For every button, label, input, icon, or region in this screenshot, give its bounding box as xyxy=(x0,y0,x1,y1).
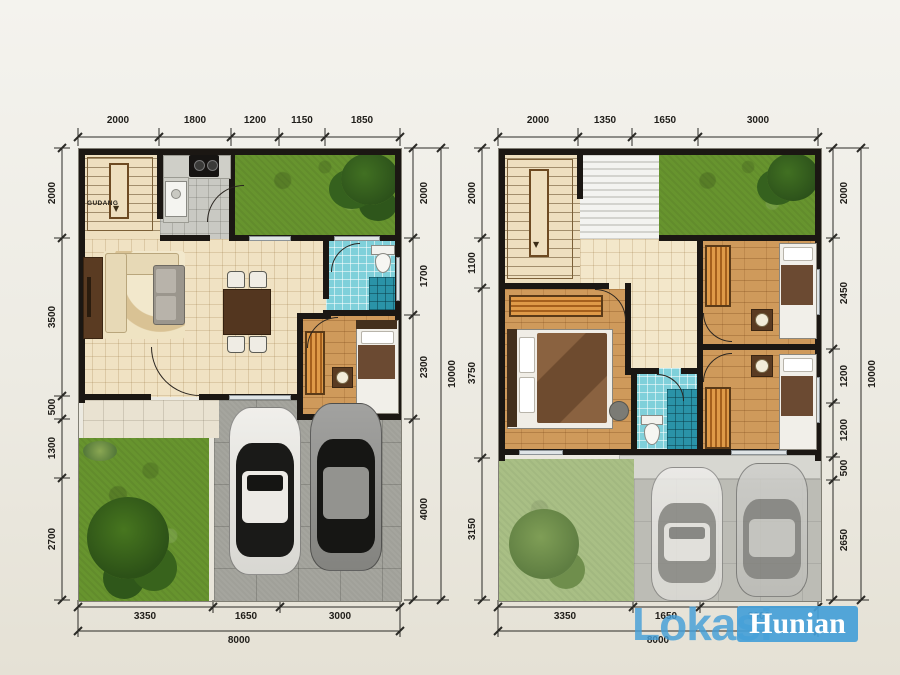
dining-chair xyxy=(249,336,267,353)
pillow xyxy=(361,331,394,344)
bed-blanket xyxy=(358,345,395,379)
car-sunroof xyxy=(669,527,705,539)
stool xyxy=(609,401,629,421)
dim-label: 2450 xyxy=(840,282,850,304)
dim-label: 1100 xyxy=(468,252,478,274)
stove-burner xyxy=(207,160,218,171)
dim-label: 1300 xyxy=(48,437,58,459)
gray-car xyxy=(310,403,382,571)
dim-total-label: 10000 xyxy=(868,360,878,388)
wall xyxy=(577,149,583,199)
dim-label: 2300 xyxy=(420,356,430,378)
lamp xyxy=(755,313,769,327)
dim-label: 1650 xyxy=(654,116,676,126)
stair-direction-arrow: ▼ xyxy=(533,241,539,249)
wall xyxy=(659,235,821,241)
terrace xyxy=(83,400,219,438)
dining-chair xyxy=(227,271,245,288)
tv xyxy=(87,277,91,317)
dim-total-label: 8000 xyxy=(228,636,250,646)
dim-label: 1850 xyxy=(351,116,373,126)
master-headboard xyxy=(507,329,517,427)
front-garden-tree xyxy=(87,497,169,579)
white-car xyxy=(229,407,301,575)
wall xyxy=(160,235,210,241)
bed-headboard xyxy=(356,320,397,329)
dim-label: 1200 xyxy=(840,365,850,387)
dim-label: 1200 xyxy=(244,116,266,126)
dim-label: 1200 xyxy=(840,419,850,441)
window xyxy=(396,257,400,301)
wall xyxy=(499,149,821,155)
kitchen-sink xyxy=(165,181,187,217)
stove-burner xyxy=(194,160,205,171)
garden-bush xyxy=(341,153,399,205)
dim-label: 500 xyxy=(840,460,850,477)
pillow xyxy=(783,358,813,372)
wall xyxy=(697,344,821,350)
dim-label: 1350 xyxy=(594,116,616,126)
car-roof xyxy=(749,519,795,557)
upper-floor-plan: ▼ xyxy=(498,148,822,602)
sectional-sofa xyxy=(105,253,127,333)
wall xyxy=(323,239,329,299)
pillow xyxy=(783,247,813,261)
dim-label: 2000 xyxy=(468,182,478,204)
watermark-text-box: Hunian xyxy=(749,609,846,639)
dim-label: 3000 xyxy=(747,116,769,126)
wall xyxy=(79,394,151,400)
wall xyxy=(499,283,609,289)
dim-label: 2000 xyxy=(420,182,430,204)
window xyxy=(249,236,291,241)
wall xyxy=(499,149,505,461)
wall xyxy=(631,368,637,455)
dim-label: 1700 xyxy=(420,265,430,287)
car-sunroof xyxy=(247,475,283,491)
wardrobe xyxy=(705,387,731,449)
dining-table xyxy=(223,289,271,335)
window xyxy=(731,450,787,455)
master-blanket xyxy=(537,333,607,423)
dim-label: 3750 xyxy=(468,362,478,384)
roof-strip xyxy=(580,149,659,239)
window xyxy=(519,450,563,455)
dim-label: 3000 xyxy=(329,612,351,622)
wall xyxy=(323,310,401,316)
dining-chair xyxy=(249,271,267,288)
pillow xyxy=(519,337,535,373)
dim-label: 3500 xyxy=(48,306,58,328)
sofa-cushion xyxy=(156,269,176,293)
dim-label: 1650 xyxy=(235,612,257,622)
watermark-box: Hunian xyxy=(737,606,858,642)
ground-floor-plan: ▼ GUDANG xyxy=(78,148,402,602)
storage-room-label: GUDANG xyxy=(87,201,118,208)
pillow xyxy=(519,377,535,413)
tree-below xyxy=(509,509,579,579)
tv-cabinet xyxy=(83,257,103,339)
dim-label: 4000 xyxy=(420,498,430,520)
floorplan-page: { "colors": { "watermark_blue": "#459fd8… xyxy=(0,0,900,675)
bed-blanket xyxy=(781,265,813,305)
flower-bed xyxy=(83,441,117,461)
dim-label: 3350 xyxy=(554,612,576,622)
dim-label: 3150 xyxy=(468,518,478,540)
dim-label: 2000 xyxy=(840,182,850,204)
dim-label: 500 xyxy=(48,399,58,416)
garden-bush xyxy=(767,153,819,201)
dim-label: 2700 xyxy=(48,528,58,550)
dining-chair xyxy=(227,336,245,353)
white-car-below xyxy=(651,467,723,601)
wall xyxy=(297,313,303,420)
dim-label: 1800 xyxy=(184,116,206,126)
gray-car-below xyxy=(736,463,808,597)
dim-total-label: 10000 xyxy=(448,360,458,388)
dim-label: 2000 xyxy=(527,116,549,126)
wall xyxy=(79,149,401,155)
master-wardrobe xyxy=(509,295,603,317)
window xyxy=(334,236,380,241)
lamp xyxy=(336,371,349,384)
dim-label: 2000 xyxy=(107,116,129,126)
wall xyxy=(631,368,659,374)
sink-drain xyxy=(171,189,181,199)
car-roof xyxy=(323,467,369,519)
dim-label: 3350 xyxy=(134,612,156,622)
dim-label: 2000 xyxy=(48,182,58,204)
sofa-cushion xyxy=(156,296,176,320)
window xyxy=(229,395,291,400)
dim-label: 2650 xyxy=(840,529,850,551)
bed-blanket xyxy=(781,376,813,416)
lamp xyxy=(755,359,769,373)
wardrobe xyxy=(705,245,731,307)
dim-label: 1150 xyxy=(291,116,313,126)
wall xyxy=(625,283,631,375)
